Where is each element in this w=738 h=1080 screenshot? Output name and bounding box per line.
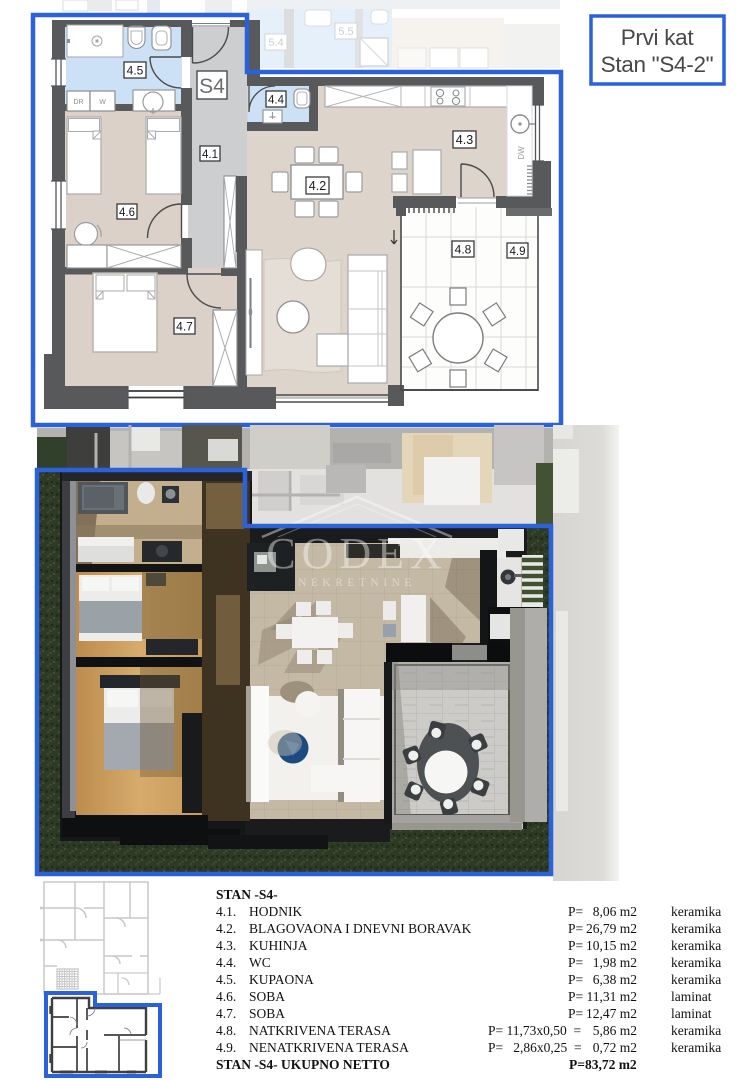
svg-text:CODEX: CODEX bbox=[266, 529, 448, 578]
svg-text:4.2: 4.2 bbox=[309, 179, 326, 193]
svg-text:DW: DW bbox=[517, 146, 526, 160]
svg-text:W: W bbox=[99, 99, 106, 106]
svg-text:4.1: 4.1 bbox=[202, 149, 218, 161]
svg-text:5.4: 5.4 bbox=[268, 37, 283, 49]
svg-text:NEKRETNINE: NEKRETNINE bbox=[298, 577, 416, 589]
svg-text:S4: S4 bbox=[199, 75, 225, 98]
svg-text:4.5: 4.5 bbox=[127, 64, 144, 78]
svg-text:4.7: 4.7 bbox=[176, 320, 193, 334]
svg-text:4.6: 4.6 bbox=[119, 207, 135, 219]
svg-text:4.9: 4.9 bbox=[510, 246, 526, 258]
svg-text:4.4: 4.4 bbox=[268, 95, 285, 107]
svg-text:4.8: 4.8 bbox=[455, 243, 472, 257]
svg-text:5.5: 5.5 bbox=[338, 26, 353, 38]
svg-text:4.3: 4.3 bbox=[456, 133, 473, 147]
svg-text:Prvi kat: Prvi kat bbox=[621, 25, 695, 50]
svg-text:Stan "S4-2": Stan "S4-2" bbox=[601, 52, 714, 77]
svg-text:DR: DR bbox=[73, 99, 83, 106]
